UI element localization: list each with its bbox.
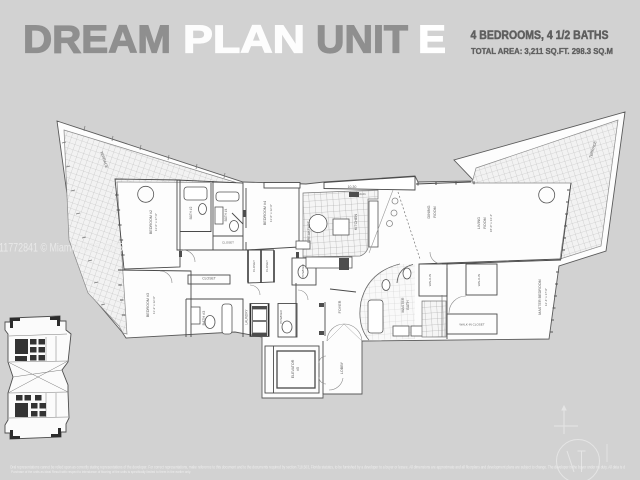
svg-text:BATH #3: BATH #3 xyxy=(202,311,206,326)
svg-text:ROOM: ROOM xyxy=(483,217,487,228)
svg-text:10-30: 10-30 xyxy=(348,185,357,189)
svg-text:WALK-IN CLOSET: WALK-IN CLOSET xyxy=(459,323,484,327)
svg-text:BATH #4: BATH #4 xyxy=(224,208,228,221)
svg-text:WALK-IN: WALK-IN xyxy=(428,274,432,286)
svg-text:POWDER: POWDER xyxy=(279,309,283,323)
svg-text:#5: #5 xyxy=(296,367,300,371)
svg-text:POWDER: POWDER xyxy=(301,263,305,277)
svg-text:BREAKFAST: BREAKFAST xyxy=(307,220,311,242)
svg-text:BEDROOM #2: BEDROOM #2 xyxy=(149,210,153,234)
svg-text:12'-4" x 17'-0": 12'-4" x 17'-0" xyxy=(544,288,548,306)
svg-text:BATH #2: BATH #2 xyxy=(189,206,193,219)
svg-text:WALK-IN: WALK-IN xyxy=(477,274,481,286)
svg-text:LIVING: LIVING xyxy=(477,217,481,229)
svg-text:ROOM: ROOM xyxy=(433,206,437,217)
svg-text:11'-2" x 12'-0": 11'-2" x 12'-0" xyxy=(152,296,156,314)
svg-text:CLOSET: CLOSET xyxy=(265,260,269,272)
svg-text:A11772841 © Miami MLS® 2025: A11772841 © Miami MLS® 2025 xyxy=(0,241,123,255)
svg-text:11'-0" x 17'-0": 11'-0" x 17'-0" xyxy=(154,213,158,231)
svg-text:TOTAL AREA: 3,211 SQ.FT. 298.3: TOTAL AREA: 3,211 SQ.FT. 298.3 SQ.M xyxy=(471,46,613,56)
svg-text:10-01: 10-01 xyxy=(358,192,366,196)
svg-text:DREAM: DREAM xyxy=(23,18,171,61)
svg-text:KITCHEN: KITCHEN xyxy=(354,214,358,231)
svg-text:11'-0" x 12'-0": 11'-0" x 12'-0" xyxy=(269,204,273,222)
svg-text:FOYER: FOYER xyxy=(338,300,342,313)
svg-text:CLOSET: CLOSET xyxy=(222,241,234,245)
svg-text:UNIT: UNIT xyxy=(316,18,408,61)
svg-text:LAUNDRY: LAUNDRY xyxy=(245,309,249,325)
svg-text:MASTER: MASTER xyxy=(401,297,405,312)
svg-text:CLOSET: CLOSET xyxy=(252,260,256,272)
svg-text:CLOSET: CLOSET xyxy=(202,277,216,281)
svg-text:MASTER BEDROOM: MASTER BEDROOM xyxy=(538,279,542,314)
svg-text:BEDROOM #4: BEDROOM #4 xyxy=(263,201,267,225)
svg-text:18'-0" x 14'-4": 18'-0" x 14'-4" xyxy=(489,214,493,232)
svg-text:Purchase of the units as ideal: Purchase of the units as ideal Result wi… xyxy=(11,469,191,474)
svg-text:LOBBY: LOBBY xyxy=(340,361,344,374)
svg-text:BEDROOM #3: BEDROOM #3 xyxy=(146,293,150,317)
svg-text:DINING: DINING xyxy=(427,205,431,218)
svg-text:BATH: BATH xyxy=(406,300,410,310)
svg-text:E: E xyxy=(418,18,446,61)
svg-text:PLAN: PLAN xyxy=(183,18,305,61)
svg-text:ELEVATOR: ELEVATOR xyxy=(291,359,295,378)
svg-text:4 BEDROOMS, 4 1/2 BATHS: 4 BEDROOMS, 4 1/2 BATHS xyxy=(471,29,609,42)
